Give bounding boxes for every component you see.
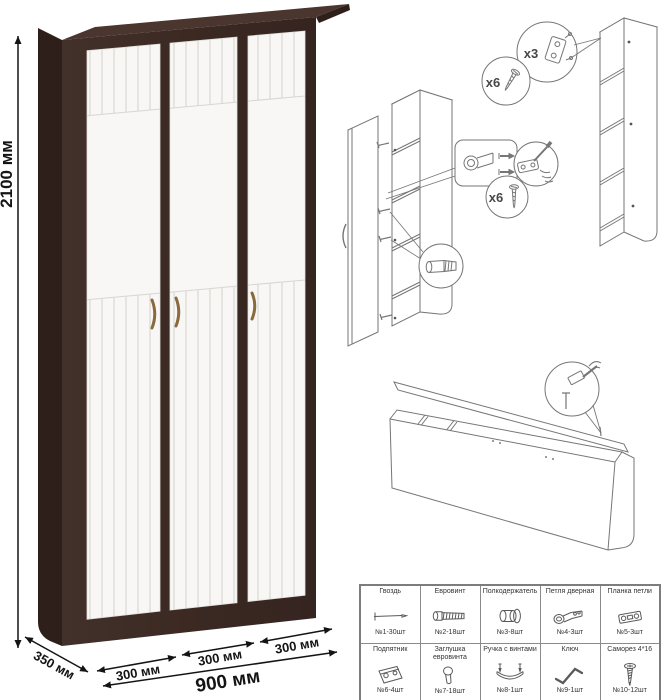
parts-table-row: Гвоздь №1-30шт Евровинт №2-18шт Полкодер… xyxy=(360,585,660,644)
part-qty: №1-30шт xyxy=(362,629,419,636)
shelf-support-icon xyxy=(491,604,529,628)
part-cell-hex-key: Ключ №9-1шт xyxy=(540,644,600,700)
part-cell-handle: Ручка с винтами №8-1шт xyxy=(480,644,540,700)
screw-cap-icon xyxy=(431,663,469,687)
parts-table-row: Подпятник №6-4шт Заглушка евровинта №7-1… xyxy=(360,644,660,700)
carcass-box xyxy=(390,410,634,550)
furniture-product-sheet: 2100 мм 350 мм 300 мм 300 мм 300 мм 900 … xyxy=(0,0,665,700)
part-cell-door-hinge: Петля дверная №4-3шт xyxy=(540,585,600,644)
assembly-door-panel xyxy=(343,116,378,346)
wardrobe-door-3 xyxy=(248,31,305,602)
part-cell-shelf-support: Полкодержатель №3-8шт xyxy=(480,585,540,644)
part-qty: №3-8шт xyxy=(482,629,539,636)
height-dimension-label: 2100 мм xyxy=(0,140,16,208)
part-cell-nail: Гвоздь №1-30шт xyxy=(360,585,420,644)
part-qty: №9-1шт xyxy=(542,687,599,694)
part-name: Петля дверная xyxy=(542,588,599,603)
part-cell-foot-pad: Подпятник №6-4шт xyxy=(360,644,420,700)
part-name: Гвоздь xyxy=(362,588,419,603)
assembly-cabinet-left xyxy=(392,90,452,326)
foot-pad-icon xyxy=(371,662,409,686)
part-name: Полкодержатель xyxy=(482,588,539,603)
parts-table: Гвоздь №1-30шт Евровинт №2-18шт Полкодер… xyxy=(359,584,661,700)
hex-key-icon xyxy=(551,662,589,686)
loose-screw-icons xyxy=(377,142,392,320)
assembly-step-doors xyxy=(343,18,657,346)
assembly-step-carcass xyxy=(390,362,634,550)
assembly-cabinet-right xyxy=(600,18,657,246)
part-cell-self-tapping-screw: Саморез 4*16 №10-12шт xyxy=(600,644,660,700)
part-name: Саморез 4*16 xyxy=(602,646,659,661)
wardrobe-door-1 xyxy=(87,44,160,619)
part-qty: №10-12шт xyxy=(602,687,659,694)
part-name: Заглушка евровинта xyxy=(422,646,479,662)
part-name: Евровинт xyxy=(422,588,479,603)
part-qty: №2-18шт xyxy=(422,629,479,636)
door-hinge-icon xyxy=(551,604,589,628)
hinge-plate-qty-label: x3 xyxy=(524,46,538,61)
euro-screw-icon xyxy=(431,604,469,628)
part-qty: №6-4шт xyxy=(362,687,419,694)
handle-with-screws-icon xyxy=(491,662,529,686)
wardrobe-side-panel xyxy=(38,28,62,646)
wardrobe-door-2 xyxy=(170,37,237,610)
part-name: Ключ xyxy=(542,646,599,661)
wardrobe-illustration xyxy=(38,4,350,646)
hinge-plate-icon xyxy=(611,604,649,628)
part-name: Планка петли xyxy=(602,588,659,603)
part-qty: №5-3шт xyxy=(602,629,659,636)
part-cell-hinge-plate: Планка петли №5-3шт xyxy=(600,585,660,644)
self-tapping-screw-icon xyxy=(611,662,649,686)
screws-qty-top-label: x6 xyxy=(486,75,500,90)
nail-icon xyxy=(371,604,409,628)
part-cell-screw-cap: Заглушка евровинта №7-18шт xyxy=(420,644,480,700)
part-name: Ручка с винтами xyxy=(482,646,539,661)
screwdriver-hand-callout xyxy=(514,142,558,186)
part-qty: №4-3шт xyxy=(542,629,599,636)
assembly-door-handle xyxy=(343,224,346,248)
part-cell-euroscrew: Евровинт №2-18шт xyxy=(420,585,480,644)
part-qty: №8-1шт xyxy=(482,687,539,694)
part-qty: №7-18шт xyxy=(422,688,479,695)
section2-dimension-label: 300 мм xyxy=(197,646,243,669)
part-name: Подпятник xyxy=(362,646,419,661)
screws-qty-door-label: x6 xyxy=(489,190,503,205)
